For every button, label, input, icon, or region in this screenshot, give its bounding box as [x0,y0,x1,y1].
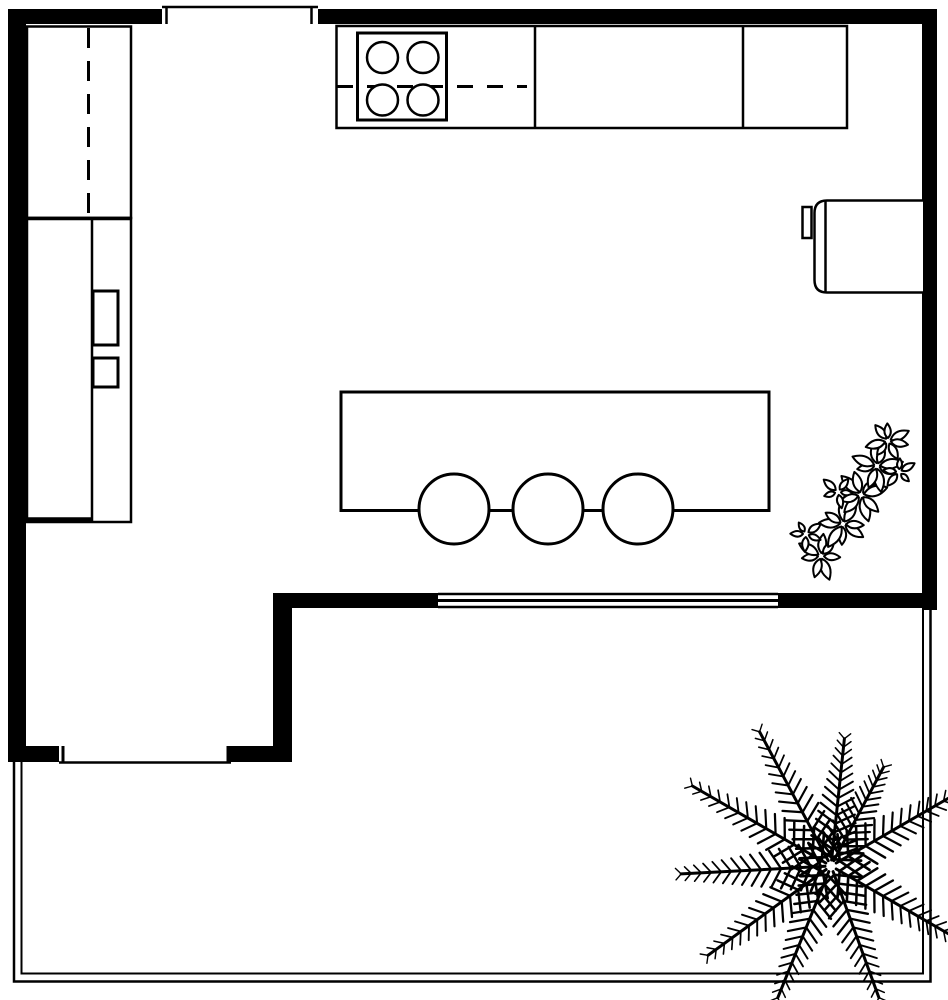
shrub-leaf [802,537,808,552]
palm-leaflet [781,989,785,997]
palm-leaflet [935,922,946,926]
palm-leaflet [900,899,916,906]
window-top-opening [162,9,318,24]
wall-top-left [8,9,162,24]
palm-leaflet [761,869,771,887]
shrub-leaf [824,491,835,497]
palm-leaflet [749,908,765,914]
palm-leaflet [849,832,870,833]
wall-middle-left [273,593,438,608]
window-top: Window [162,7,318,24]
palm-leaflet [900,826,916,833]
palm-leaflet [763,894,782,902]
palm-leaflet [881,760,884,768]
palm-leaflet [752,730,760,732]
palm-leaflet [707,955,708,963]
palm-leaflet [728,928,741,932]
palm-leaflet [732,938,733,950]
floor-plan-canvas: Exterior walls Window Sliding glass door… [0,0,948,1000]
palm-leaflet [918,910,932,916]
palm-leaflet [732,871,741,884]
palm-leaflet [766,839,785,850]
palm-leaflet [709,802,720,806]
palm-leaflet [676,874,681,880]
palm-leaflet [741,823,757,830]
burner-3 [367,85,398,116]
palm-leaflet [735,921,749,925]
palm-leaflet [792,910,813,913]
palm-leaflet [764,732,767,741]
palm-leaflet [839,733,844,739]
stool-2 [513,474,583,544]
palm-leaflet [731,858,741,870]
palm-leaflet [803,936,813,951]
tall-cabinet-body [27,27,131,219]
palm-frond-stem [692,786,825,863]
palm-leaflet [935,806,946,810]
palm-leaflet [707,948,716,950]
palm-leaflet [758,834,776,843]
palm-leaflet [675,868,681,874]
burner-1 [367,42,398,73]
palm-leaflet [926,916,938,921]
palm-leaflet [883,887,901,896]
palm-leaflet [825,787,838,798]
palm-leaflet [892,901,893,920]
shrub-leaf [828,527,842,547]
palm-leaflet [851,945,860,958]
palm-leaflet [859,963,866,974]
palm-leaflet [771,869,781,888]
palm-leaflet [796,954,804,967]
palm-leaflet [774,748,779,759]
palm-leaflet [733,818,748,825]
tall-cabinet: Tall cabinet with dashed upper-cabinet l… [27,27,131,219]
shrub-leaf [897,458,902,469]
palm-leaflet [874,841,893,852]
palm-leaflet [774,908,775,927]
palm-leaflet [714,941,724,943]
palm-leaflet [801,875,828,877]
shrub-leaf [846,521,864,528]
palm-leaflet [722,860,732,871]
shrub-leaf [837,495,843,508]
palm-leaflet [742,915,757,920]
wall-appliance-body [815,201,924,293]
palm-leaflet [873,770,877,780]
entry-window: Window [59,746,231,763]
wall-middle-right [778,593,937,608]
palm-leaflet [790,919,810,922]
palm-leaflet [900,809,901,826]
shrub-leaf [891,439,908,447]
palm-leaflet [847,936,857,950]
palm-leaflet [701,797,711,800]
palm-leaflet [793,779,801,794]
stool-1 [419,474,489,544]
palm-leaflet [847,910,868,914]
palm-leaflet [838,919,850,935]
palm-leaflet [829,771,840,781]
palm-leaflet [765,810,766,829]
sliding-door: Sliding glass door [438,594,778,607]
palm-leaflet [783,811,803,812]
wall-appliance-handle [803,207,812,238]
palm-leaflet [760,724,763,732]
palm-leaflet [831,763,841,772]
palm-leaflet [845,839,868,840]
wall-right [922,9,937,610]
palm-leaflet [856,792,863,806]
palm-leaflet [789,830,812,831]
palm-leaflet [844,734,850,739]
palm-leaflet [833,756,841,765]
shrub-leaf [884,423,890,438]
palm-leaflet [779,802,798,804]
palm-leaflet [721,935,733,938]
palm-leaflet [740,932,741,945]
palm-leaflet [750,855,761,870]
palm-leaflet [756,806,757,823]
palm-leaflet [703,864,711,873]
shrub-leaf [809,534,821,540]
shrub-leaf [841,490,852,495]
palm-leaflet [860,787,866,800]
palm-leaflet [842,927,853,942]
palm-leaflet [864,781,869,793]
palm-leaflet [760,853,772,869]
floor-plan: Exterior walls Window Sliding glass door… [0,0,948,1000]
tall-unit-handle-1 [93,291,118,345]
palm-leaflet [741,857,752,871]
palm-leaflet [691,778,693,786]
tall-unit-handle-2 [93,358,118,387]
palm-leaflet [856,818,875,820]
shrub-leaf [902,463,915,471]
shrub-leaf [813,559,822,577]
palm-leaflet [847,876,849,901]
palm-leaflet [799,945,808,959]
palm-leaflet [838,853,863,854]
tall-unit: Tall unit / refrigerator with two door h… [26,218,131,522]
wall-appliance: Wall appliance with handle [803,201,924,293]
palm-leaflet [874,881,893,892]
palm-leaflet [866,846,886,858]
shrub-leaf [901,474,909,481]
palm-leaflet [813,910,826,927]
shrub-plant: Leafy plant [790,423,914,579]
palm-leaflet [855,954,863,966]
palm-leaflet [712,862,721,872]
palm-leaflet [812,811,824,830]
palm-leaflet [837,884,862,887]
palm-leaflet [700,954,708,955]
palm-leaflet [788,771,795,785]
shrub-leaf [790,531,803,537]
palm-leaflet [869,776,874,787]
wall-bottom-a [8,746,59,762]
palm-leaflet [806,927,817,942]
palm-leaflet [806,884,809,908]
palm-leaflet [884,765,892,767]
burner-2 [408,42,439,73]
palm-leaflet [926,811,938,816]
palm-leaflet [742,870,751,885]
palm-leaflet [827,779,839,790]
palm-leaflet [883,896,884,916]
palm-leaflet [786,820,807,821]
palm-leaflet [756,901,774,908]
palm-leaflet [900,906,901,923]
palm-leaflet [769,740,773,750]
wall-left [8,9,26,762]
palm-leaflet [723,943,724,954]
kitchen-island: Kitchen island [341,392,769,544]
palm-leaflet [782,902,783,922]
palm-leaflet [909,821,924,828]
palm-leaflet [803,826,804,850]
patio-border-inner [22,610,924,974]
palm-leaflet [918,816,932,822]
palm-leaflet [871,989,875,997]
wall-bottom-b [229,746,292,762]
palm-leaflet [783,763,789,776]
shrub-leaf [799,523,805,532]
palm-leaflet [794,901,817,904]
palm-leaflet [944,801,948,804]
burner-4 [408,85,439,116]
palm-leaflet [752,870,761,886]
stool-3 [603,474,673,544]
palm-leaflet [803,795,813,812]
shrub-leaf [809,524,821,533]
palm-leaflet [841,892,865,895]
palm-leaflet [717,807,729,812]
shrub-leaf [824,480,836,490]
palm-leaflet [866,874,886,886]
palm-leaflet [892,893,909,901]
palm-leaflet [856,881,857,905]
palm-plant: Palm plant [675,724,948,1000]
shrub-leaf [888,474,898,485]
palm-leaflet [810,919,822,935]
palm-frond-stem [708,870,826,956]
palm-leaflet [775,814,776,834]
palm-leaflet [892,831,909,839]
palm-leaflet [693,791,702,794]
wall-alcove [273,608,292,762]
wall-top-right [318,9,937,24]
palm-leaflet [877,765,880,774]
palm-leaflet [892,812,893,831]
palm-leaflet [883,816,884,836]
palm-leaflet [883,836,901,845]
palm-leaflet [685,786,693,788]
palm-leaflet [852,825,872,826]
palm-leaflet [909,905,924,912]
palm-leaflet [750,829,767,837]
palm-leaflet [944,928,948,931]
palm-leaflet [798,787,807,803]
palm-leaflet [835,859,862,860]
palm-leaflet [850,919,870,923]
palm-leaflet [725,813,739,819]
palm-leaflet [779,755,784,767]
palm-leaflet [851,798,859,813]
palm-leaflet [792,963,799,975]
